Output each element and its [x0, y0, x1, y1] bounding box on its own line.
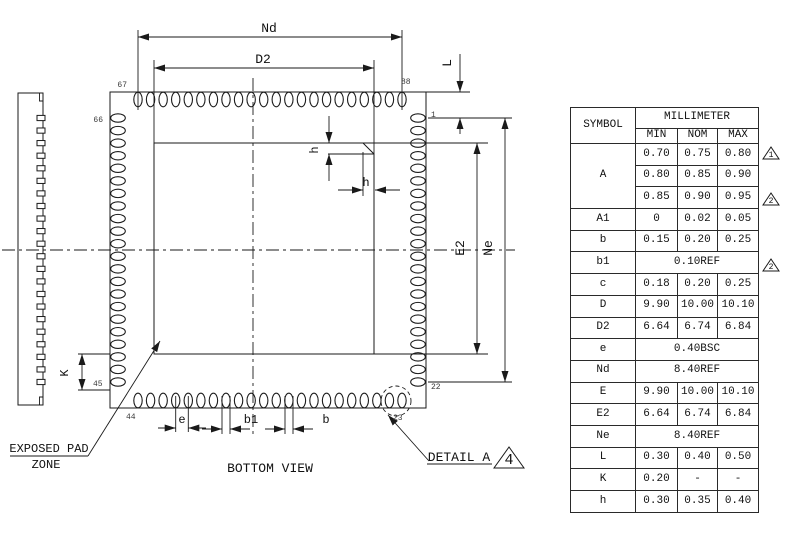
table-row: E9.9010.0010.10: [571, 382, 759, 404]
value-cell-span: 0.40BSC: [636, 339, 759, 361]
value-cell: 9.90: [636, 382, 678, 404]
value-cell: 0.80: [718, 144, 759, 166]
dim-label-b1: b1: [244, 413, 258, 427]
value-cell: 0.70: [636, 144, 678, 166]
table-header-row: SYMBOL MILLIMETER: [571, 108, 759, 129]
table-row: b0.150.200.25: [571, 230, 759, 252]
symbol-cell: K: [571, 469, 636, 491]
bottom-view-caption: BOTTOM VIEW: [227, 461, 313, 476]
value-cell: 0.15: [636, 230, 678, 252]
symbol-cell: E: [571, 382, 636, 404]
value-cell: 6.74: [678, 404, 718, 426]
top-pin-row: [134, 92, 406, 107]
extension-lines: [78, 30, 512, 434]
value-cell: 0.50: [718, 447, 759, 469]
dim-label-b: b: [322, 413, 329, 427]
pin-label-67: 67: [117, 81, 127, 90]
dim-label-e2: E2: [453, 240, 468, 256]
value-cell: 0.40: [718, 491, 759, 513]
value-cell-span: 8.40REF: [636, 360, 759, 382]
header-max: MAX: [718, 129, 759, 144]
exposed-pad-caption-line2: ZONE: [32, 458, 61, 472]
value-cell: 0.85: [678, 165, 718, 187]
value-cell: 0: [636, 209, 678, 231]
symbol-cell: h: [571, 491, 636, 513]
dim-label-ne: Ne: [481, 240, 496, 256]
table-row: b10.10REF: [571, 252, 759, 274]
pin-label-23: 23: [393, 414, 403, 423]
table-row: Nd8.40REF: [571, 360, 759, 382]
table-row: D26.646.746.84: [571, 317, 759, 339]
value-cell: 9.90: [636, 295, 678, 317]
dim-label-l: L: [440, 59, 455, 67]
dim-label-e: e: [178, 413, 185, 427]
detail-a-number: 4: [504, 452, 513, 469]
value-cell: 10.10: [718, 382, 759, 404]
symbol-cell: D2: [571, 317, 636, 339]
dim-label-nd: Nd: [261, 21, 277, 36]
table-row: K0.20--: [571, 469, 759, 491]
dim-label-k: K: [58, 369, 72, 377]
table-row: A100.020.05: [571, 209, 759, 231]
value-cell: 6.84: [718, 317, 759, 339]
value-cell: 0.75: [678, 144, 718, 166]
header-nom: NOM: [678, 129, 718, 144]
dim-label-h-horizontal: h: [362, 176, 369, 190]
exposed-pad-outline: [154, 143, 374, 354]
pin-label-22: 22: [431, 383, 441, 392]
value-cell: 0.02: [678, 209, 718, 231]
table-row: L0.300.400.50: [571, 447, 759, 469]
table-row: h0.300.350.40: [571, 491, 759, 513]
value-cell-span: 0.10REF: [636, 252, 759, 274]
value-cell: 0.35: [678, 491, 718, 513]
header-unit: MILLIMETER: [636, 108, 759, 129]
table-row: A0.700.750.80: [571, 144, 759, 166]
value-cell: 10.10: [718, 295, 759, 317]
symbol-cell: Ne: [571, 425, 636, 447]
pin-label-1: 1: [431, 111, 436, 120]
dim-label-d2: D2: [255, 52, 271, 67]
table-row: e0.40BSC: [571, 339, 759, 361]
header-symbol: SYMBOL: [571, 108, 636, 144]
value-cell: -: [678, 469, 718, 491]
value-cell: 0.05: [718, 209, 759, 231]
dimension-lines: [82, 37, 505, 429]
note-number-2: 2: [769, 197, 774, 206]
detail-a-caption: DETAIL A: [428, 450, 491, 465]
value-cell: 6.64: [636, 404, 678, 426]
value-cell: 10.00: [678, 382, 718, 404]
value-cell: 0.20: [678, 230, 718, 252]
table-row: c0.180.200.25: [571, 274, 759, 296]
value-cell: -: [718, 469, 759, 491]
value-cell: 0.95: [718, 187, 759, 209]
symbol-cell: E2: [571, 404, 636, 426]
value-cell: 0.20: [678, 274, 718, 296]
package-bottom-view-drawing: Nd D2 L h h E2 Ne K e b1 b 67 88 1 22 23…: [0, 0, 560, 538]
value-cell: 0.90: [718, 165, 759, 187]
symbol-cell: b: [571, 230, 636, 252]
value-cell-span: 8.40REF: [636, 425, 759, 447]
value-cell: 6.74: [678, 317, 718, 339]
value-cell: 0.85: [636, 187, 678, 209]
symbol-cell: e: [571, 339, 636, 361]
symbol-cell: c: [571, 274, 636, 296]
value-cell: 10.00: [678, 295, 718, 317]
value-cell: 0.80: [636, 165, 678, 187]
symbol-cell: D: [571, 295, 636, 317]
symbol-cell: A: [571, 144, 636, 209]
dim-label-h-vertical: h: [308, 146, 322, 153]
dimension-table: SYMBOL MILLIMETER MIN NOM MAX A0.700.750…: [570, 107, 759, 513]
value-cell: 0.25: [718, 230, 759, 252]
value-cell: 6.64: [636, 317, 678, 339]
pin-label-44: 44: [126, 413, 136, 422]
symbol-cell: L: [571, 447, 636, 469]
note-number-1: 1: [769, 151, 774, 160]
symbol-cell: b1: [571, 252, 636, 274]
table-row: D9.9010.0010.10: [571, 295, 759, 317]
side-view: [18, 93, 45, 405]
note-callouts: 1 2 2: [758, 141, 794, 281]
value-cell: 0.18: [636, 274, 678, 296]
note-number-3: 2: [769, 263, 774, 272]
value-cell: 0.25: [718, 274, 759, 296]
pin-label-88: 88: [401, 78, 411, 87]
symbol-cell: A1: [571, 209, 636, 231]
header-min: MIN: [636, 129, 678, 144]
value-cell: 6.84: [718, 404, 759, 426]
bottom-pin-row: [134, 393, 406, 408]
package-drawing-sheet: Nd D2 L h h E2 Ne K e b1 b 67 88 1 22 23…: [0, 0, 800, 538]
table-row: E26.646.746.84: [571, 404, 759, 426]
exposed-pad-caption-line1: EXPOSED PAD: [9, 442, 88, 456]
symbol-cell: Nd: [571, 360, 636, 382]
value-cell: 0.30: [636, 491, 678, 513]
value-cell: 0.90: [678, 187, 718, 209]
value-cell: 0.30: [636, 447, 678, 469]
table-row: Ne8.40REF: [571, 425, 759, 447]
pin-label-45: 45: [93, 380, 103, 389]
pin-label-66: 66: [93, 116, 103, 125]
value-cell: 0.40: [678, 447, 718, 469]
value-cell: 0.20: [636, 469, 678, 491]
